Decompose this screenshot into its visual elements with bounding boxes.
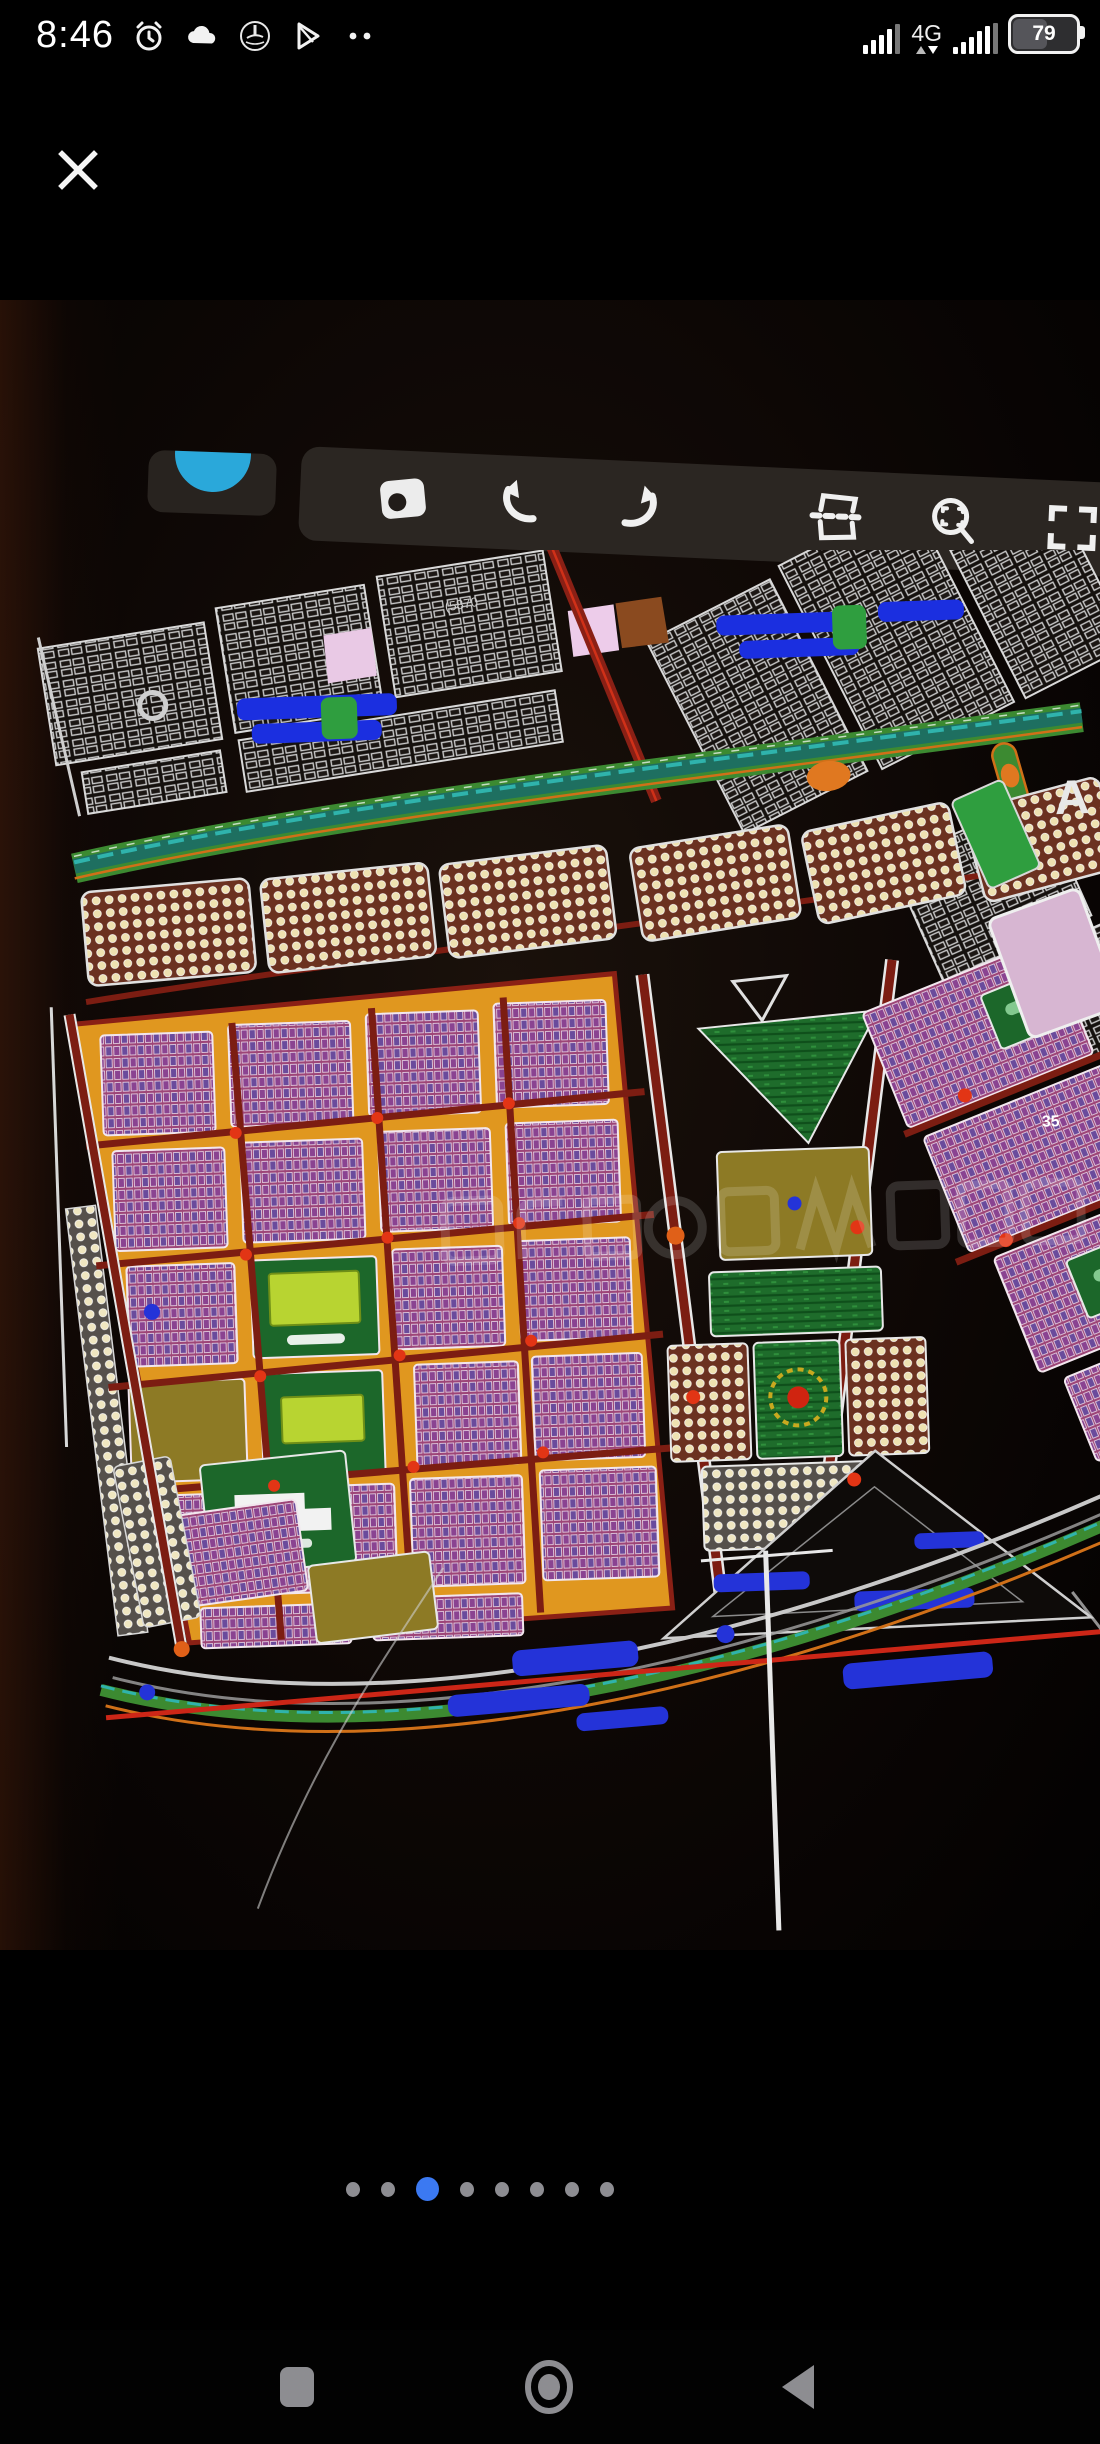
recents-button[interactable] — [264, 2354, 330, 2420]
pager-dot[interactable] — [565, 2182, 579, 2197]
undo-icon — [460, 470, 581, 535]
cad-plan-photo[interactable]: (5870 — [0, 300, 1100, 1950]
data-arrows-icon — [916, 46, 938, 54]
pager-dot[interactable] — [460, 2182, 474, 2197]
pager-dot[interactable] — [495, 2182, 509, 2197]
recents-square-icon — [276, 2363, 318, 2411]
map-corner-letter: A — [1054, 771, 1091, 825]
android-nav-bar — [0, 2330, 1100, 2444]
home-circle-icon — [522, 2358, 576, 2416]
blue-action-button — [174, 450, 253, 494]
page-indicator[interactable] — [346, 2174, 614, 2204]
alarm-icon — [131, 18, 167, 54]
close-icon — [54, 146, 102, 194]
battery-percent: 79 — [1032, 22, 1055, 46]
map-road-number: 35 — [1042, 1113, 1060, 1131]
battery-indicator: 79 — [1008, 14, 1080, 54]
app-badge-icon — [237, 18, 273, 54]
clock-time: 8:46 — [36, 14, 114, 57]
status-bar: 8:46 — [0, 0, 1100, 72]
photo-toolbar-left-plate — [147, 450, 277, 516]
pager-dot[interactable] — [600, 2182, 614, 2197]
back-triangle-icon — [776, 2361, 822, 2413]
pager-dot[interactable] — [346, 2182, 360, 2197]
status-bar-left: 8:46 — [36, 14, 379, 57]
toolbar-spacer — [696, 481, 779, 545]
status-bar-right: 4G 79 — [863, 18, 1080, 54]
signal-sim1-icon — [863, 24, 900, 54]
network-type: 4G — [911, 22, 942, 54]
more-notifications-dots — [343, 18, 379, 54]
cloud-icon — [184, 18, 220, 54]
home-button[interactable] — [516, 2354, 582, 2420]
pager-dot[interactable] — [530, 2182, 544, 2197]
camera-icon — [343, 465, 464, 530]
pager-dot[interactable] — [381, 2182, 395, 2197]
pager-dot-active[interactable] — [416, 2177, 439, 2201]
signal-sim2-icon — [953, 24, 998, 54]
back-button[interactable] — [766, 2354, 832, 2420]
cad-map-drawing: (5870 — [0, 550, 1100, 1950]
zoom-extents-icon — [894, 490, 1015, 555]
play-store-icon — [290, 18, 326, 54]
redo-icon — [578, 476, 699, 541]
close-button[interactable] — [54, 146, 102, 194]
section-icon — [776, 485, 897, 550]
